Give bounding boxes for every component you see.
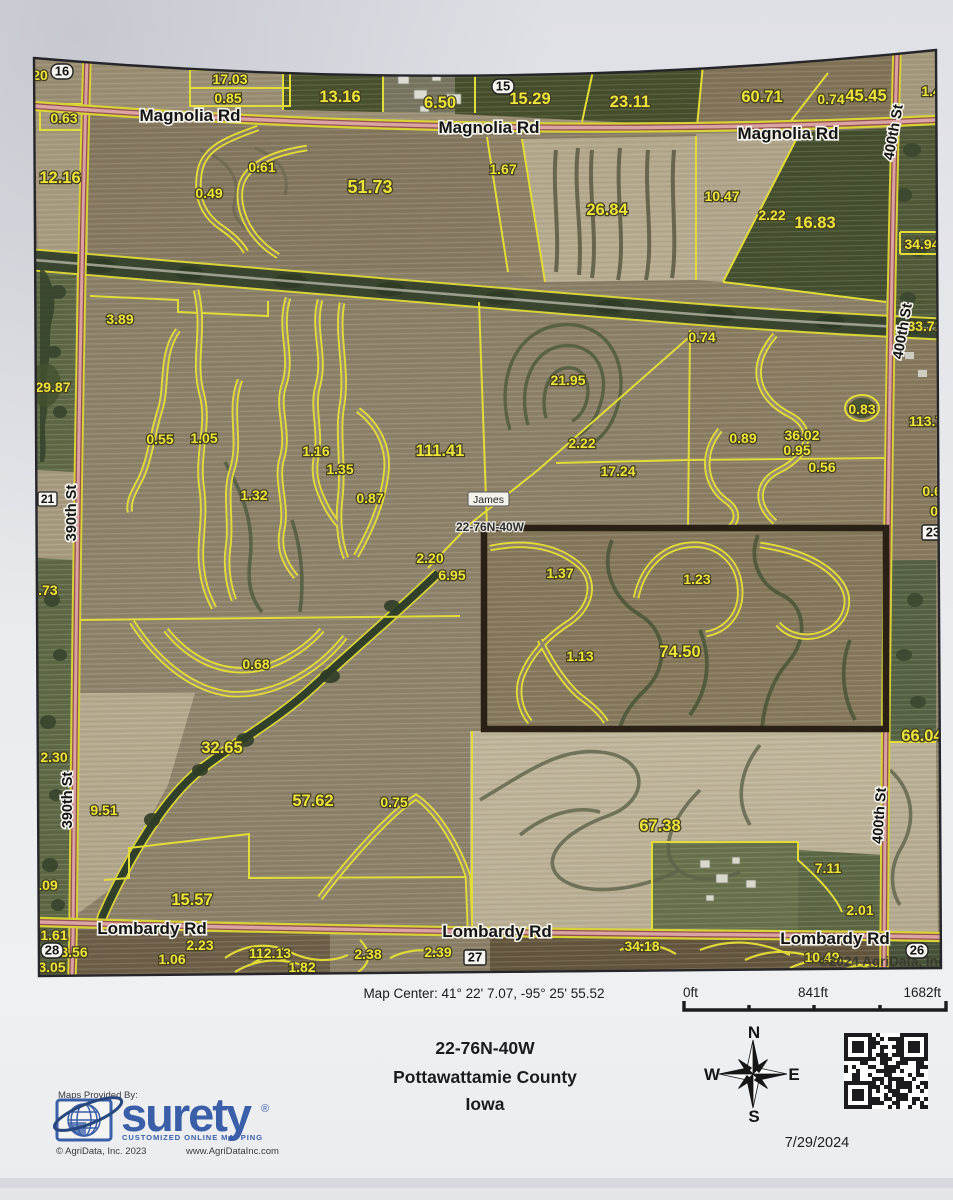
svg-text:0.56: 0.56 (808, 459, 835, 475)
svg-text:Magnolia Rd: Magnolia Rd (737, 124, 838, 143)
svg-text:6.95: 6.95 (438, 567, 465, 583)
svg-text:2.20: 2.20 (416, 550, 443, 566)
svg-text:James: James (473, 494, 504, 506)
svg-text:7.11: 7.11 (815, 860, 842, 876)
svg-text:Lombardy Rd: Lombardy Rd (97, 919, 207, 938)
svg-text:E: E (788, 1065, 799, 1084)
svg-text:0.95: 0.95 (783, 442, 810, 458)
svg-text:57.62: 57.62 (292, 792, 333, 810)
svg-text:15.29: 15.29 (509, 90, 550, 108)
svg-text:0.63: 0.63 (50, 110, 77, 126)
svg-text:27: 27 (468, 950, 482, 965)
svg-text:6.50: 6.50 (424, 94, 456, 112)
svg-text:3.89: 3.89 (106, 311, 133, 327)
svg-text:16: 16 (55, 64, 69, 79)
svg-text:N: N (748, 1023, 760, 1042)
svg-text:17.03: 17.03 (212, 71, 247, 87)
svg-text:0.55: 0.55 (146, 431, 173, 447)
svg-text:15.57: 15.57 (171, 891, 212, 909)
svg-text:841ft: 841ft (798, 985, 828, 1000)
svg-text:17.24: 17.24 (600, 463, 635, 479)
svg-text:2.23: 2.23 (186, 937, 213, 953)
svg-text:67.38: 67.38 (639, 817, 680, 835)
svg-text:0ft: 0ft (683, 985, 698, 1000)
svg-text:1.05: 1.05 (190, 430, 217, 446)
svg-text:3.05: 3.05 (38, 959, 65, 975)
svg-text:1.06: 1.06 (158, 951, 185, 967)
svg-text:1.61: 1.61 (40, 927, 67, 943)
svg-text:.09: .09 (38, 877, 58, 893)
svg-text:© AgriData, Inc. 2023: © AgriData, Inc. 2023 (56, 1146, 146, 1157)
svg-text:Magnolia Rd: Magnolia Rd (139, 106, 240, 125)
svg-text:www.AgriDataInc.com: www.AgriDataInc.com (185, 1146, 279, 1157)
svg-text:51.73: 51.73 (347, 177, 392, 197)
svg-text:34.18: 34.18 (624, 938, 659, 954)
svg-text:22-76N-40W: 22-76N-40W (435, 1038, 535, 1058)
svg-text:22-76N-40W: 22-76N-40W (456, 520, 525, 534)
svg-text:7/29/2024: 7/29/2024 (785, 1135, 850, 1151)
svg-text:CUSTOMIZED ONLINE MAPPING: CUSTOMIZED ONLINE MAPPING (122, 1133, 263, 1142)
svg-text:0.74: 0.74 (817, 91, 844, 107)
svg-text:1.67: 1.67 (489, 161, 516, 177)
svg-text:16.83: 16.83 (794, 214, 835, 232)
svg-text:36.02: 36.02 (784, 427, 819, 443)
svg-text:1682ft: 1682ft (903, 985, 941, 1000)
svg-text:Pottawattamie County: Pottawattamie County (393, 1067, 577, 1087)
svg-text:10.47: 10.47 (704, 188, 739, 204)
svg-text:S: S (748, 1107, 759, 1126)
svg-text:45.45: 45.45 (845, 87, 886, 105)
svg-text:Map Center: 41° 22' 7.07, -95: Map Center: 41° 22' 7.07, -95° 25' 55.52 (363, 986, 604, 1001)
svg-text:Iowa: Iowa (466, 1094, 505, 1114)
svg-text:0.85: 0.85 (214, 90, 241, 106)
svg-text:2.38: 2.38 (354, 946, 381, 962)
svg-text:0.75: 0.75 (380, 794, 407, 810)
svg-text:28: 28 (45, 943, 59, 958)
svg-text:15: 15 (496, 79, 510, 94)
svg-text:34.94: 34.94 (904, 236, 939, 252)
svg-text:111.41: 111.41 (416, 442, 465, 460)
svg-text:13.16: 13.16 (319, 88, 360, 106)
svg-text:1.32: 1.32 (240, 487, 267, 503)
svg-text:Magnolia Rd: Magnolia Rd (438, 118, 539, 137)
svg-text:3.56: 3.56 (60, 944, 87, 960)
svg-text:0.49: 0.49 (195, 185, 222, 201)
svg-text:2.30: 2.30 (40, 749, 67, 765)
svg-text:1.13: 1.13 (566, 648, 593, 664)
svg-text:9.51: 9.51 (90, 802, 117, 818)
svg-text:60.71: 60.71 (741, 88, 782, 106)
svg-text:390th St: 390th St (64, 485, 80, 542)
svg-text:2.22: 2.22 (758, 207, 785, 223)
svg-text:Lombardy Rd: Lombardy Rd (780, 929, 890, 948)
svg-text:0.87: 0.87 (356, 490, 383, 506)
svg-text:21: 21 (41, 492, 55, 506)
svg-text:1.16: 1.16 (302, 443, 329, 459)
svg-text:Lombardy Rd: Lombardy Rd (442, 922, 552, 941)
svg-text:0.83: 0.83 (848, 401, 875, 417)
svg-text:0.74: 0.74 (688, 329, 715, 345)
svg-text:0.61: 0.61 (248, 159, 275, 175)
svg-text:21.95: 21.95 (550, 372, 585, 388)
svg-text:W: W (704, 1065, 721, 1084)
svg-text:2.22: 2.22 (568, 435, 595, 451)
svg-text:390th St: 390th St (60, 772, 76, 829)
svg-text:1.37: 1.37 (546, 565, 573, 581)
svg-text:0.89: 0.89 (729, 430, 756, 446)
svg-text:1.35: 1.35 (326, 461, 353, 477)
svg-text:12.16: 12.16 (39, 169, 80, 187)
svg-text:26.84: 26.84 (586, 201, 628, 219)
svg-text:32.65: 32.65 (201, 739, 242, 757)
svg-text:2.01: 2.01 (846, 902, 873, 918)
svg-text:1.23: 1.23 (683, 571, 710, 587)
svg-text:112.13: 112.13 (249, 945, 291, 961)
svg-text:2.39: 2.39 (424, 944, 451, 960)
svg-text:©2024 AgriData, Inc.: ©2024 AgriData, Inc. (819, 954, 949, 969)
svg-text:74.50: 74.50 (659, 643, 700, 661)
svg-text:®: ® (261, 1103, 269, 1115)
svg-text:66.04: 66.04 (901, 727, 943, 745)
svg-text:29.87: 29.87 (35, 379, 70, 395)
svg-text:23.11: 23.11 (610, 93, 650, 111)
svg-text:0.68: 0.68 (242, 656, 269, 672)
